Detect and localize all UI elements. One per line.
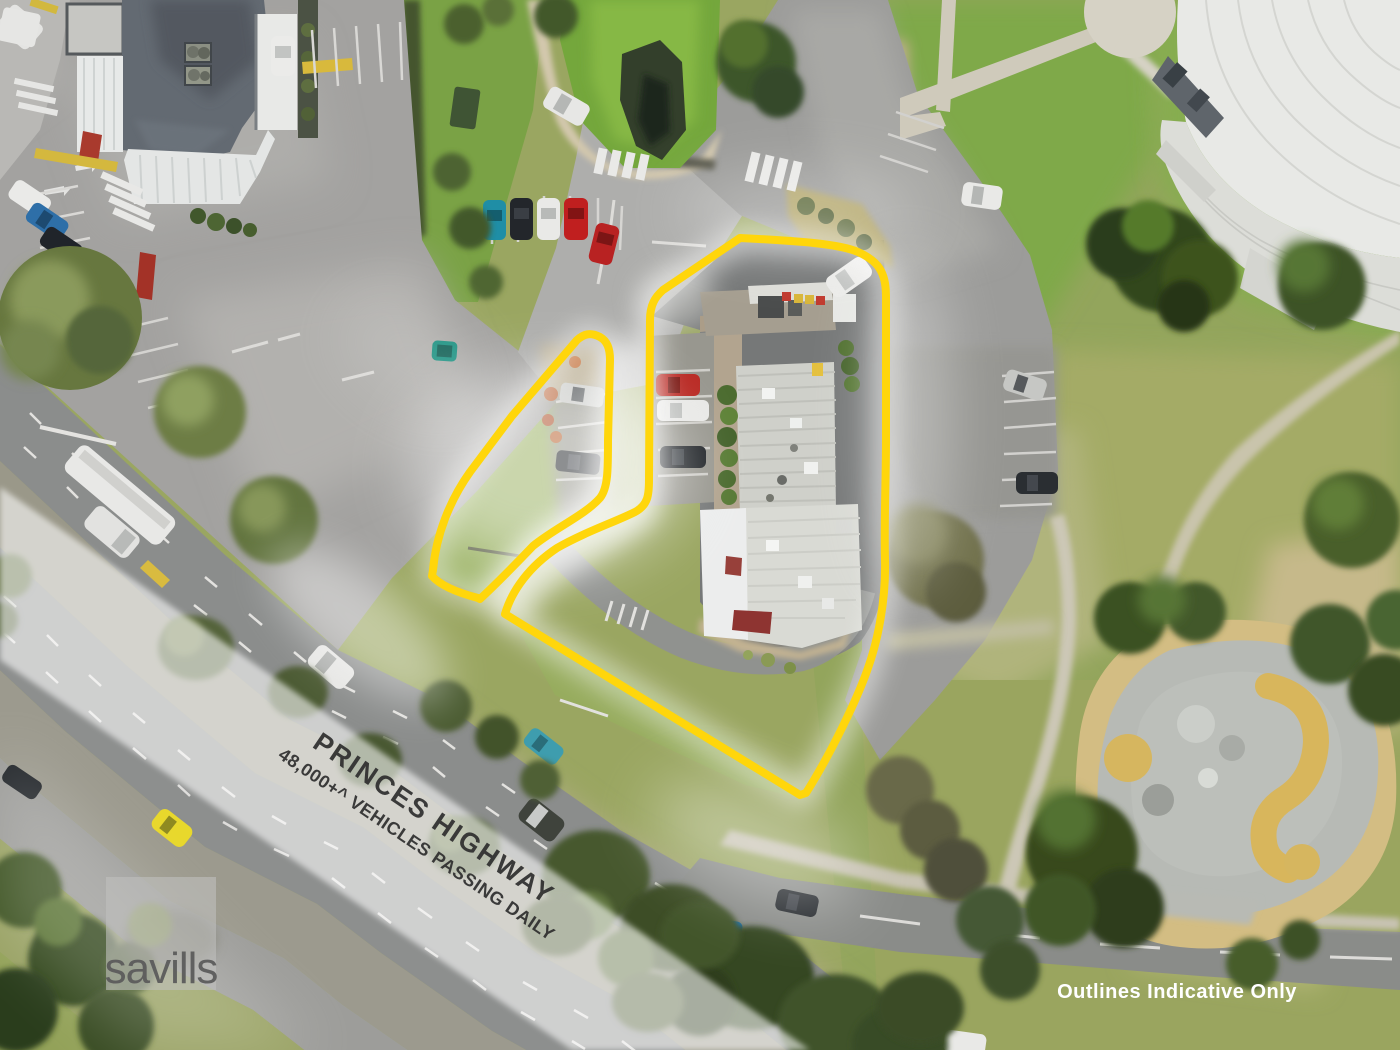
svg-text:savills: savills <box>105 944 218 993</box>
svg-text:Outlines Indicative Only: Outlines Indicative Only <box>1057 981 1297 1003</box>
